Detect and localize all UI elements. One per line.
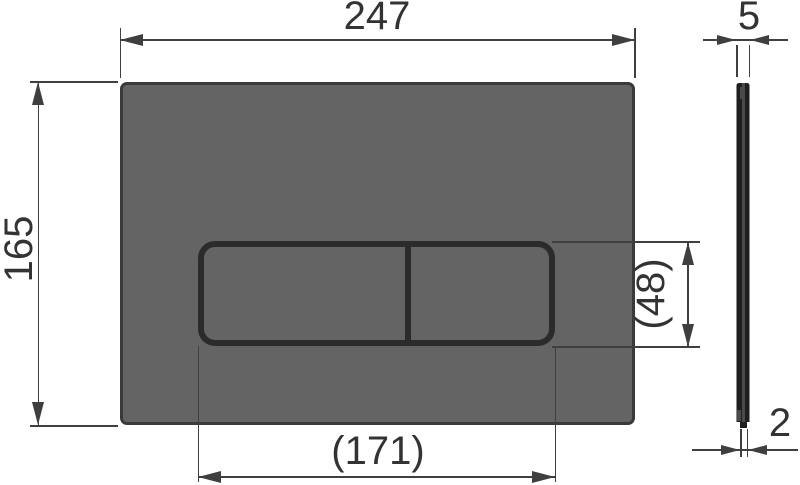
dimension-label-overall-height: 165	[0, 199, 39, 299]
arrowhead-width-left	[120, 34, 143, 46]
extension-line-panel-height-top	[552, 241, 700, 243]
arrowhead-thickness-left	[717, 35, 736, 45]
extension-line-height-bottom	[30, 425, 118, 427]
dimension-label-edge-thickness: 2	[762, 403, 798, 443]
dimension-label-panel-height: (48)	[631, 239, 671, 349]
dimension-label-overall-width: 247	[327, 0, 427, 36]
arrowhead-panel-width-right	[532, 471, 555, 483]
arrowhead-panel-height-bottom	[682, 324, 694, 347]
button-divider	[405, 247, 411, 340]
extension-line-panel-width-left	[198, 346, 200, 482]
technical-drawing-canvas: 247 165 (171) (48) 5 2	[0, 0, 800, 485]
side-view-bottom-notch	[737, 410, 741, 421]
arrowhead-edge-thickness-left	[721, 445, 740, 455]
arrowhead-height-bottom	[32, 402, 44, 425]
dimension-label-thickness: 5	[729, 0, 769, 36]
arrowhead-height-top	[32, 82, 44, 105]
button-panel-outline	[198, 241, 555, 346]
arrowhead-panel-height-top	[682, 242, 694, 265]
flush-plate-side-view	[736, 83, 750, 422]
extension-line-panel-width-right	[555, 346, 557, 482]
extension-line-panel-height-bottom	[552, 346, 700, 348]
arrowhead-panel-width-left	[198, 471, 221, 483]
dimension-line-thickness	[736, 39, 750, 41]
arrowhead-edge-thickness-right	[748, 445, 767, 455]
extension-line-edge-thickness-left	[740, 429, 742, 457]
side-view-bottom-edge	[740, 422, 747, 428]
dimension-line-width	[120, 39, 635, 41]
extension-line-thickness-left	[736, 45, 738, 77]
arrowhead-width-right	[612, 34, 635, 46]
dimension-line-panel-width	[198, 476, 555, 478]
dimension-label-panel-width: (171)	[318, 431, 438, 471]
side-view-top-notch	[740, 87, 743, 99]
extension-line-thickness-right	[749, 45, 751, 77]
